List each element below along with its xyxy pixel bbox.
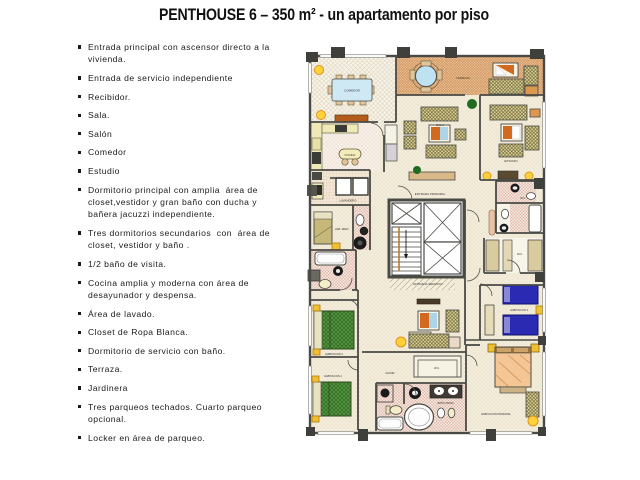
svg-text:HABITACION PRINCIPAL: HABITACION PRINCIPAL [481,412,511,416]
svg-text:CLOSET: CLOSET [385,372,395,375]
svg-text:ESTUDIO: ESTUDIO [504,159,518,163]
svg-text:HABITACION 4: HABITACION 4 [324,374,342,378]
svg-text:HABITACION 3: HABITACION 3 [510,308,528,312]
svg-text:SALA: SALA [436,123,444,127]
svg-text:COMEDOR: COMEDOR [344,89,361,93]
svg-text:TERRAZA: TERRAZA [456,76,470,80]
svg-text:ENTRADA PRINCIPAL: ENTRADA PRINCIPAL [415,192,446,196]
svg-text:W.C.: W.C. [434,366,440,370]
svg-text:W.C.: W.C. [520,196,526,200]
svg-text:W.C.: W.C. [517,252,523,256]
svg-text:COCINA: COCINA [345,153,356,157]
svg-text:LAVANDERO: LAVANDERO [340,199,358,203]
svg-text:ENTRADA SERVICIO: ENTRADA SERVICIO [413,282,443,286]
svg-text:HABITACION 2: HABITACION 2 [325,352,343,356]
svg-text:HAB. SERV.: HAB. SERV. [335,227,350,231]
